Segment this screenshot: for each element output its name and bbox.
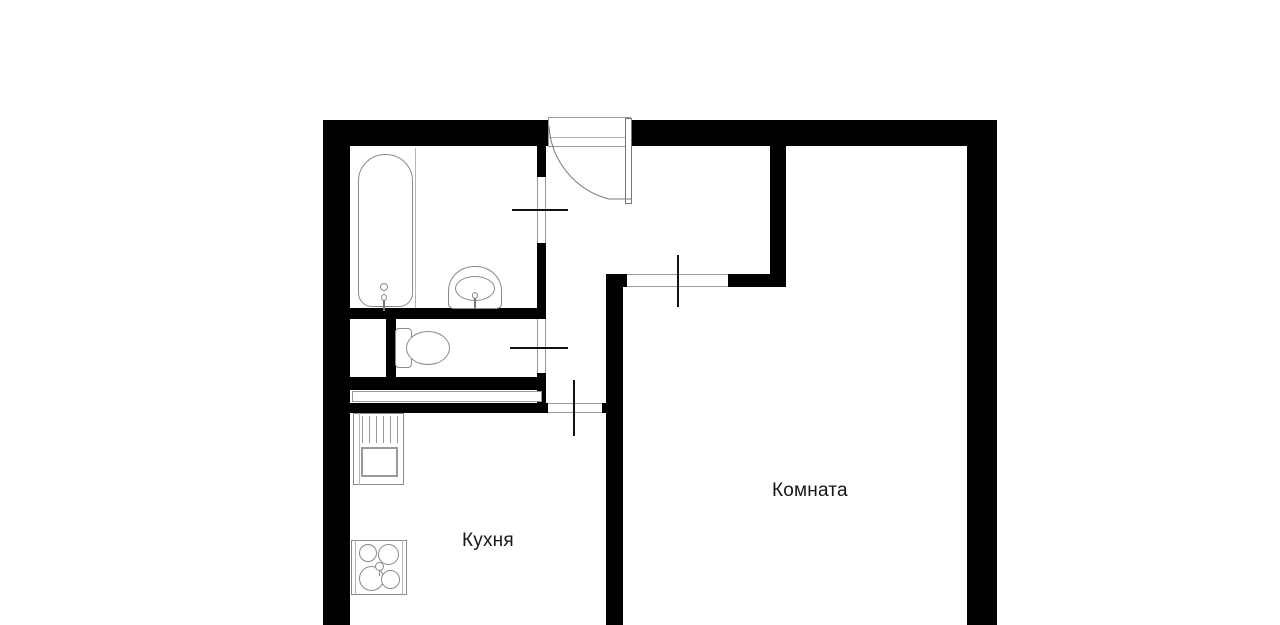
kitchen-door-opening [548,403,602,413]
stove-burner-top-left [359,544,377,562]
wall-outer-top-right [631,120,997,146]
room-label-kitchen: Кухня [462,531,514,551]
wall-bath-east-mid [537,243,546,308]
room-door-tick [677,255,679,307]
kitchen-door-tick [573,380,575,436]
stove-left-line [355,540,356,595]
wall-gap-band [352,391,542,402]
floor-plan: Кухня Комната [0,0,1280,625]
kitchen-sink-basin [361,447,398,477]
wall-outer-left [323,120,350,625]
toilet-bowl [406,331,450,365]
bathroom-zone-divider-line [415,148,416,308]
wall-kitchen-north [350,403,548,413]
stove-burner-bottom-right [381,570,400,589]
wall-toilet-south [350,377,546,390]
stove-center-knob-stem [379,570,380,576]
bathtub-faucet-stem [383,300,385,311]
wall-outer-top-left [323,120,548,146]
stove-right-line [402,540,403,595]
toilet-door-opening [537,319,546,373]
kitchen-sink-unit-left-line [359,413,360,485]
wall-room-west-upper [770,146,786,287]
bathtub-drain [380,283,388,291]
bathroom-sink-faucet-stem [474,298,476,309]
room-label-room: Комната [772,481,848,501]
wall-outer-right [967,120,997,625]
wall-hall-south-corner [606,274,627,287]
wall-room-divider [606,274,623,625]
toilet-door-tick [510,347,568,349]
entrance-door-swing-arc [540,110,660,230]
kitchen-drainer-hatch [362,416,400,443]
wall-bath-south [350,308,546,319]
